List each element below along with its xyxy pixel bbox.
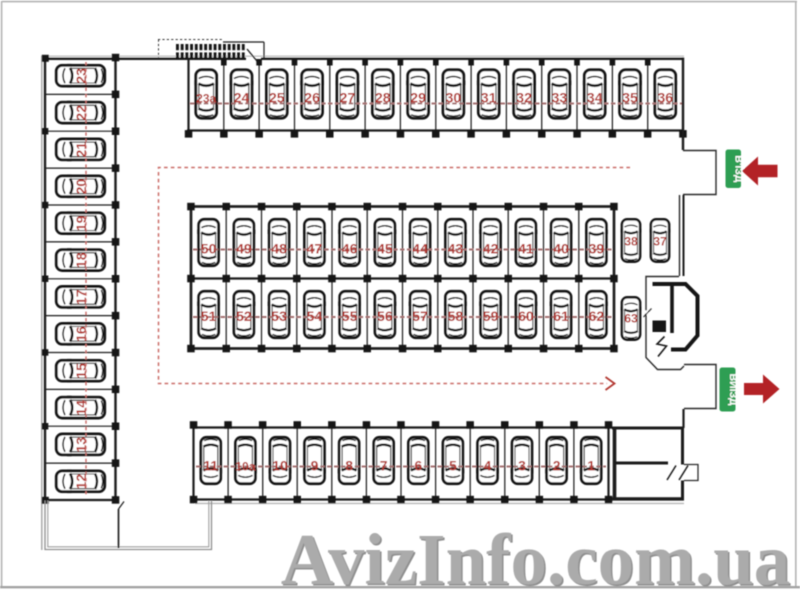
svg-text:40: 40 [553, 241, 569, 257]
svg-text:23а: 23а [196, 92, 216, 106]
svg-text:50: 50 [201, 241, 217, 257]
svg-text:1: 1 [587, 458, 595, 474]
svg-text:4: 4 [484, 458, 492, 474]
svg-text:ВИЇЗД: ВИЇЗД [727, 373, 740, 406]
svg-text:13: 13 [73, 437, 89, 453]
svg-text:58: 58 [448, 308, 464, 324]
svg-text:36: 36 [658, 90, 674, 106]
svg-text:3: 3 [518, 458, 526, 474]
svg-text:30: 30 [446, 90, 462, 106]
svg-text:32: 32 [516, 90, 532, 106]
svg-text:В'ЇЗД: В'ЇЗД [733, 155, 746, 183]
svg-text:42: 42 [483, 241, 499, 257]
svg-text:63: 63 [624, 312, 638, 326]
svg-text:57: 57 [412, 308, 428, 324]
svg-text:5: 5 [449, 458, 457, 474]
svg-text:17: 17 [73, 289, 89, 305]
svg-text:62: 62 [589, 308, 605, 324]
svg-text:21: 21 [73, 142, 89, 158]
svg-text:6: 6 [414, 458, 422, 474]
svg-text:31: 31 [481, 90, 497, 106]
svg-text:AvizInfo.com.ua: AvizInfo.com.ua [281, 519, 791, 595]
svg-text:25: 25 [269, 90, 285, 106]
svg-text:38: 38 [624, 235, 638, 249]
svg-text:28: 28 [375, 90, 391, 106]
svg-text:10: 10 [272, 458, 288, 474]
svg-text:49: 49 [236, 241, 252, 257]
svg-text:43: 43 [448, 241, 464, 257]
svg-text:44: 44 [412, 241, 428, 257]
svg-text:34: 34 [587, 90, 603, 106]
svg-text:56: 56 [377, 308, 393, 324]
svg-text:46: 46 [342, 241, 358, 257]
svg-text:47: 47 [307, 241, 323, 257]
svg-text:10а: 10а [235, 460, 255, 474]
svg-text:61: 61 [553, 308, 569, 324]
svg-text:9: 9 [311, 458, 319, 474]
svg-text:60: 60 [518, 308, 534, 324]
svg-text:52: 52 [236, 308, 252, 324]
svg-text:26: 26 [304, 90, 320, 106]
svg-text:8: 8 [345, 458, 353, 474]
svg-text:59: 59 [483, 308, 499, 324]
svg-text:48: 48 [271, 241, 287, 257]
svg-text:37: 37 [653, 235, 667, 249]
svg-text:11: 11 [203, 458, 218, 474]
svg-text:24: 24 [234, 90, 250, 106]
svg-text:29: 29 [410, 90, 426, 106]
svg-text:54: 54 [307, 308, 323, 324]
svg-text:27: 27 [340, 90, 356, 106]
svg-text:51: 51 [201, 308, 217, 324]
svg-text:53: 53 [271, 308, 287, 324]
svg-text:33: 33 [552, 90, 568, 106]
svg-text:55: 55 [342, 308, 358, 324]
svg-text:45: 45 [377, 241, 393, 257]
svg-text:2: 2 [553, 458, 561, 474]
svg-text:7: 7 [380, 458, 388, 474]
svg-text:41: 41 [518, 241, 534, 257]
svg-text:39: 39 [589, 241, 605, 257]
svg-text:35: 35 [622, 90, 638, 106]
